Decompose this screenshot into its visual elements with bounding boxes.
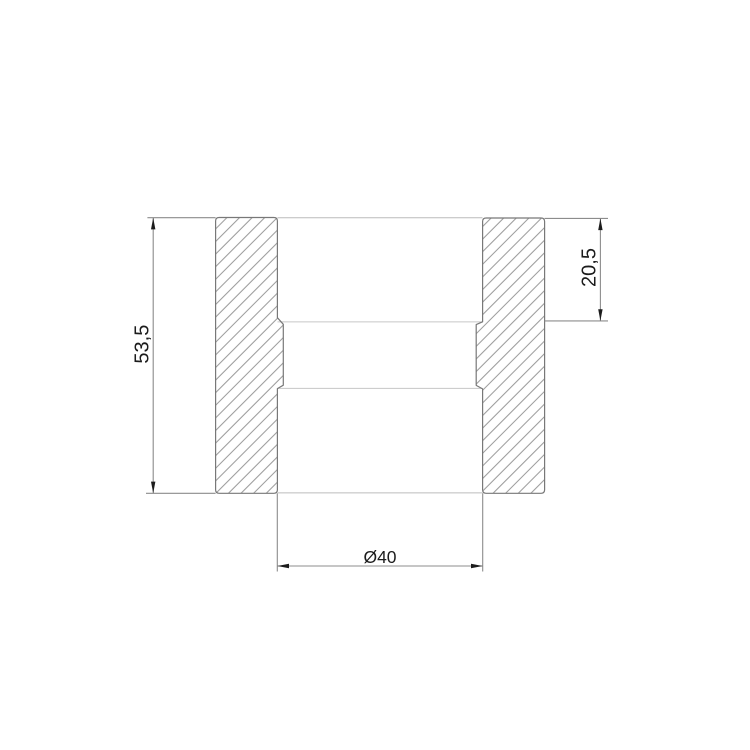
svg-text:53,5: 53,5	[131, 325, 153, 364]
svg-text:Ø40: Ø40	[363, 547, 396, 567]
svg-text:20,5: 20,5	[578, 248, 600, 287]
